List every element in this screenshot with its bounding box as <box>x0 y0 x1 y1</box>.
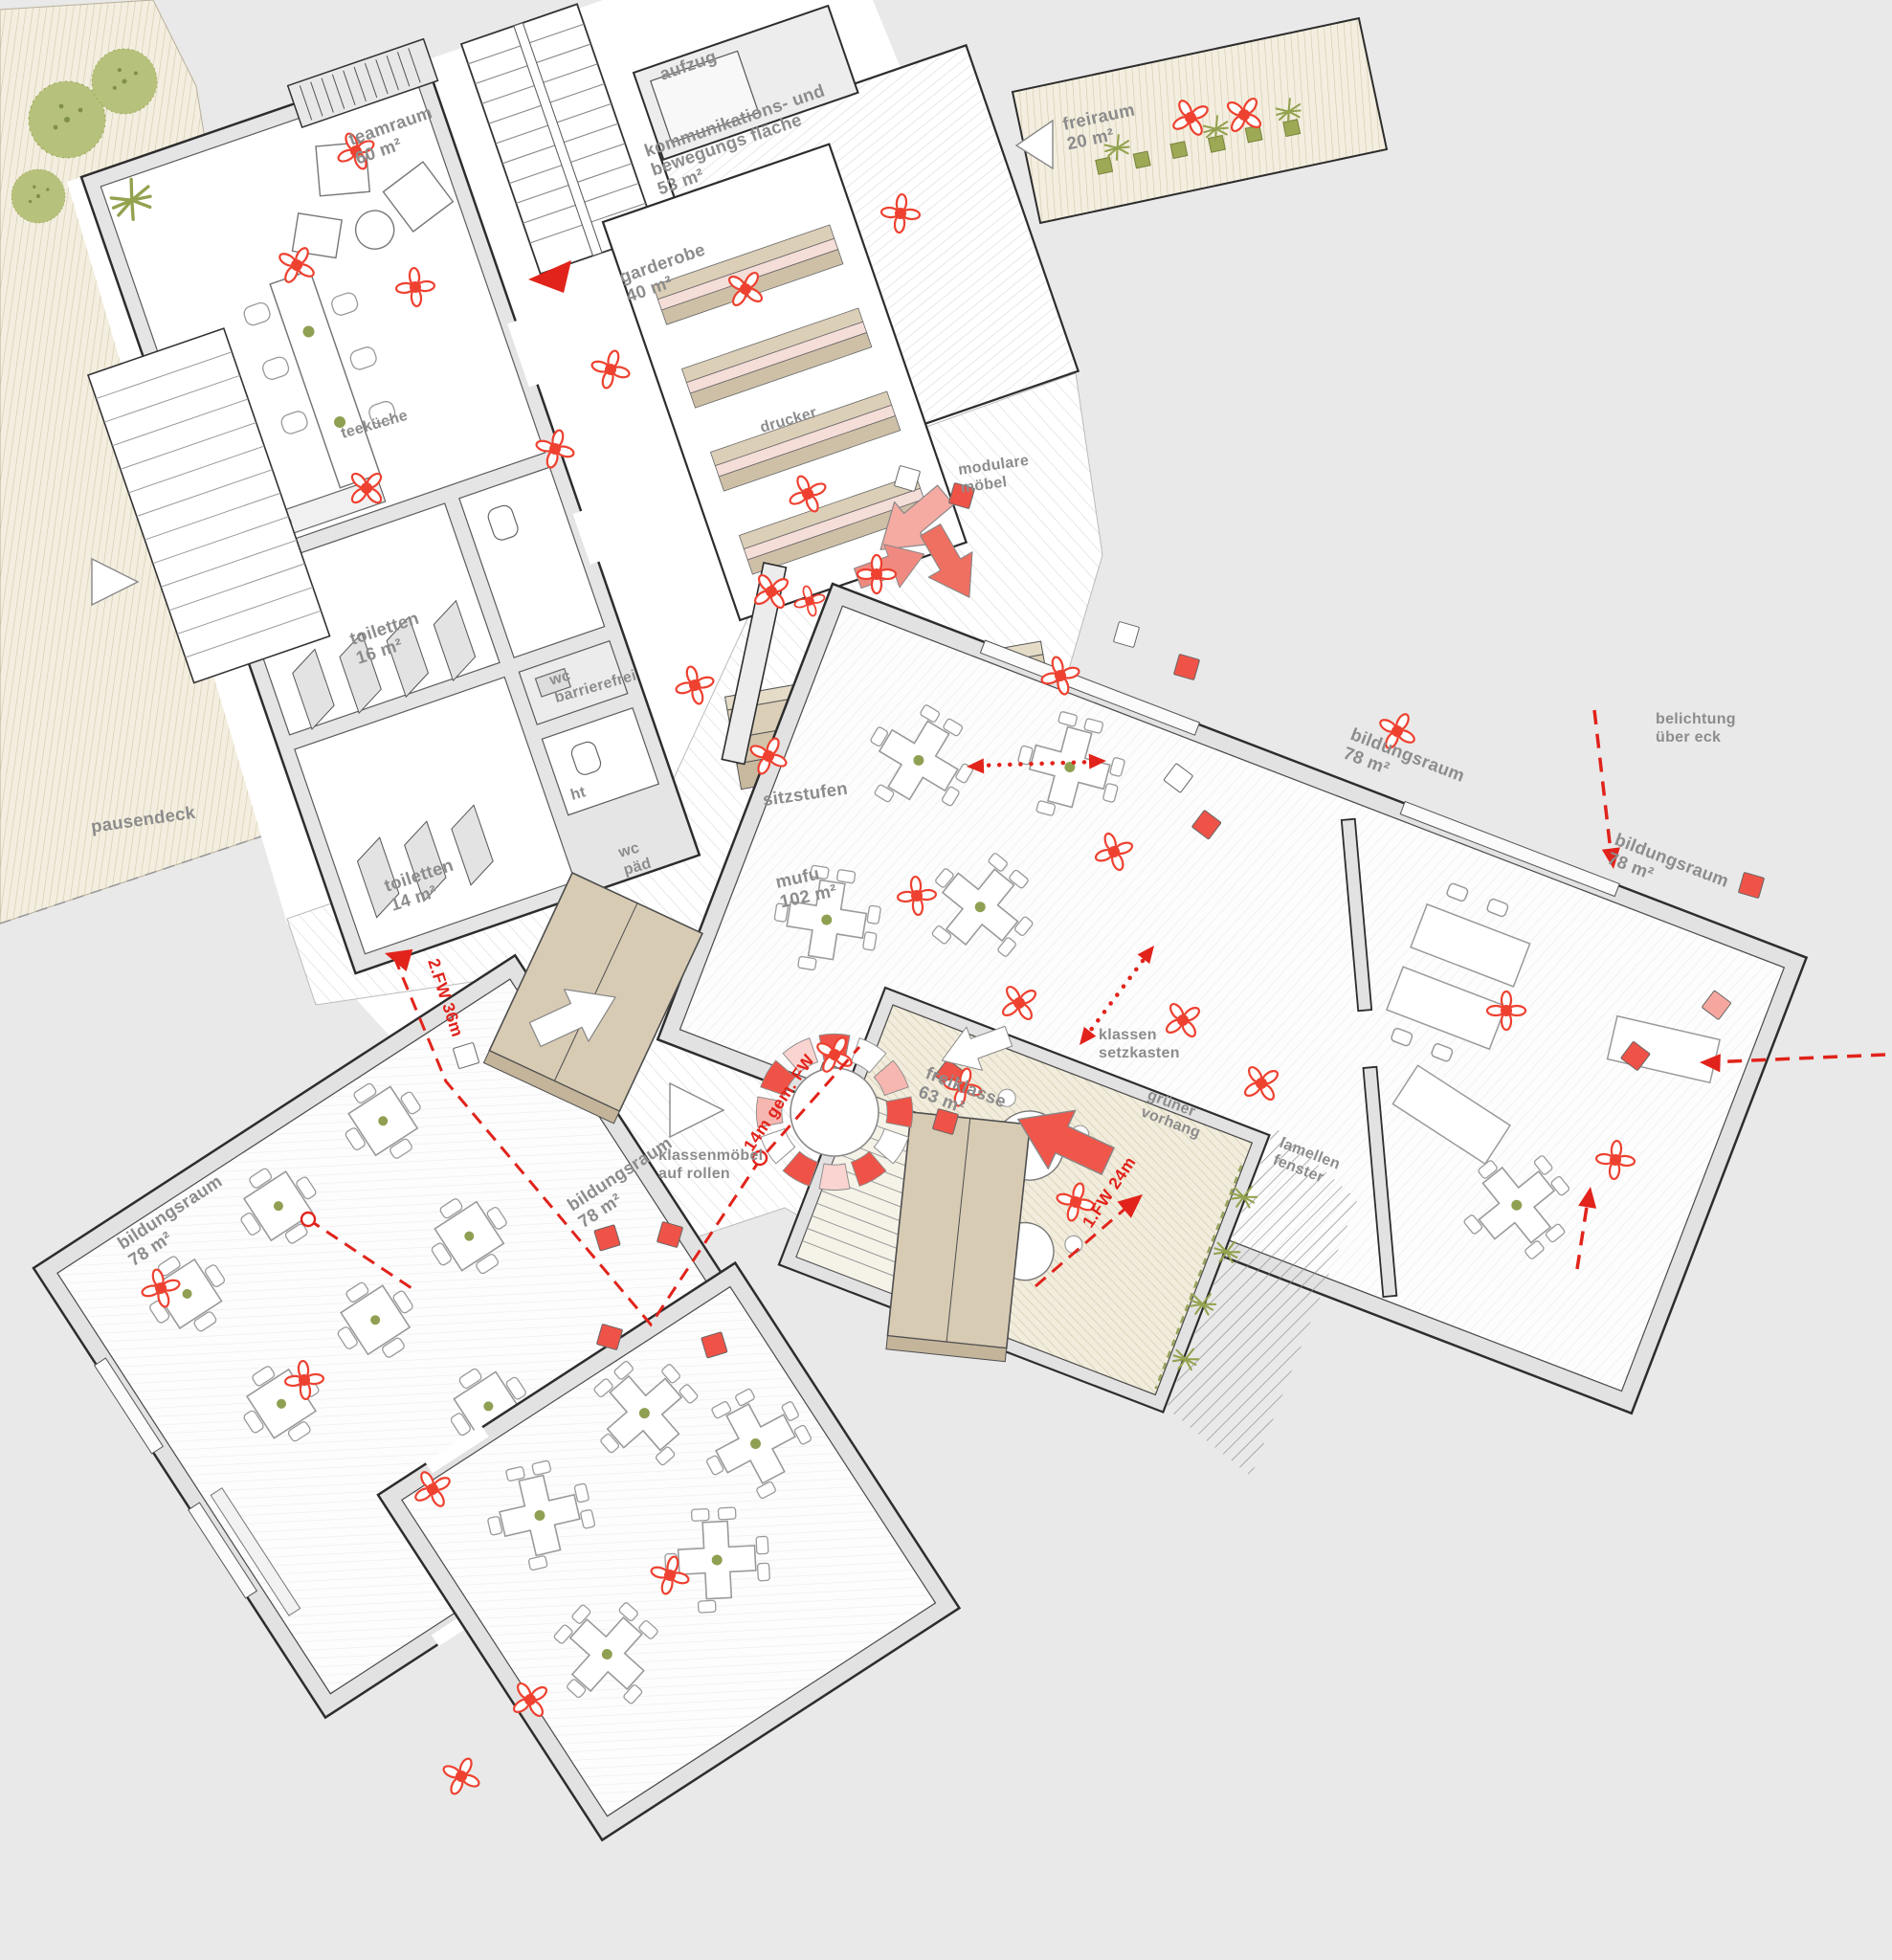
svg-text:setzkasten: setzkasten <box>1099 1045 1180 1061</box>
svg-text:belichtung: belichtung <box>1656 711 1736 727</box>
svg-text:auf rollen: auf rollen <box>658 1166 730 1182</box>
svg-text:klassen: klassen <box>1099 1027 1157 1043</box>
svg-text:über eck: über eck <box>1656 729 1721 746</box>
floorplan: teamraum 60 m² aufzug kommunikations- un… <box>0 0 1892 1960</box>
mufu-cabinet <box>886 1112 1030 1362</box>
